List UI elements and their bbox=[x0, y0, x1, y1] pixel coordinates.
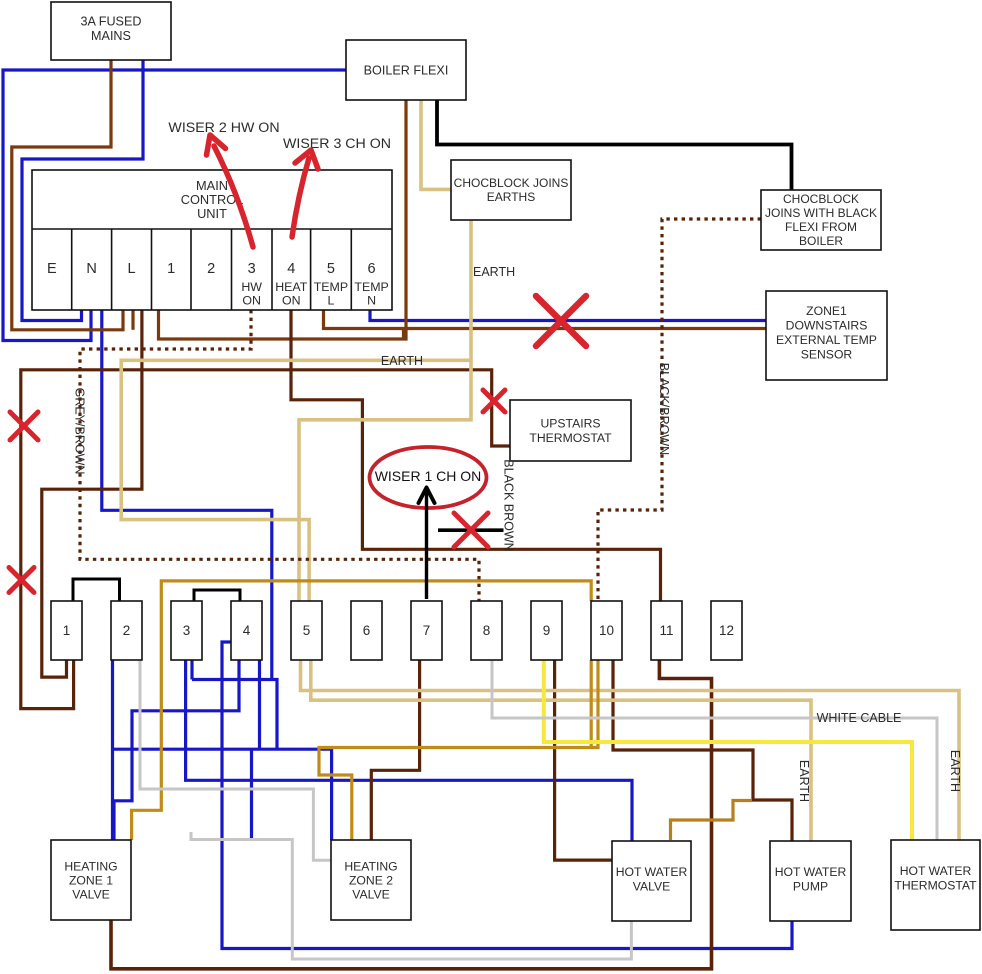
svg-text:EARTH: EARTH bbox=[797, 760, 811, 802]
svg-text:WHITE CABLE: WHITE CABLE bbox=[817, 711, 902, 725]
svg-text:UNIT: UNIT bbox=[197, 206, 227, 221]
svg-text:ZONE 1: ZONE 1 bbox=[69, 873, 113, 887]
svg-text:3: 3 bbox=[248, 261, 256, 277]
svg-text:FLEXI FROM: FLEXI FROM bbox=[785, 220, 857, 234]
svg-text:HEATING: HEATING bbox=[344, 859, 397, 873]
svg-text:N: N bbox=[86, 261, 96, 277]
svg-text:ZONE1: ZONE1 bbox=[806, 304, 847, 318]
svg-text:10: 10 bbox=[599, 623, 614, 638]
svg-text:HEATING: HEATING bbox=[64, 859, 117, 873]
svg-text:VALVE: VALVE bbox=[72, 887, 109, 901]
svg-text:1: 1 bbox=[63, 623, 71, 638]
svg-text:5: 5 bbox=[327, 261, 335, 277]
svg-text:ON: ON bbox=[242, 294, 261, 308]
svg-text:3A FUSED: 3A FUSED bbox=[81, 15, 142, 29]
svg-text:MAIN: MAIN bbox=[196, 178, 228, 193]
svg-text:TEMP: TEMP bbox=[354, 280, 388, 294]
svg-text:6: 6 bbox=[368, 261, 376, 277]
svg-text:DOWNSTAIRS: DOWNSTAIRS bbox=[786, 319, 868, 333]
svg-text:VALVE: VALVE bbox=[633, 880, 670, 894]
svg-text:ZONE 2: ZONE 2 bbox=[349, 873, 393, 887]
svg-text:4: 4 bbox=[243, 623, 251, 638]
svg-text:8: 8 bbox=[483, 623, 491, 638]
svg-text:EARTHS: EARTHS bbox=[487, 190, 535, 204]
svg-text:WISER 2 HW ON: WISER 2 HW ON bbox=[168, 120, 279, 136]
svg-text:2: 2 bbox=[123, 623, 131, 638]
svg-text:EXTERNAL TEMP: EXTERNAL TEMP bbox=[776, 333, 877, 347]
svg-text:L: L bbox=[127, 261, 135, 277]
svg-text:HW: HW bbox=[241, 280, 262, 294]
svg-text:GREY/BROWN: GREY/BROWN bbox=[73, 388, 87, 475]
svg-text:4: 4 bbox=[287, 261, 295, 277]
svg-text:JOINS WITH BLACK: JOINS WITH BLACK bbox=[765, 206, 877, 220]
svg-text:HOT WATER: HOT WATER bbox=[900, 864, 972, 878]
svg-text:EARTH: EARTH bbox=[948, 750, 962, 792]
svg-text:MAINS: MAINS bbox=[91, 29, 131, 43]
svg-text:5: 5 bbox=[303, 623, 311, 638]
svg-text:BOILER FLEXI: BOILER FLEXI bbox=[364, 63, 449, 77]
svg-text:WISER 3 CH ON: WISER 3 CH ON bbox=[283, 136, 391, 152]
svg-text:WISER 1 CH ON: WISER 1 CH ON bbox=[375, 468, 482, 484]
svg-text:PUMP: PUMP bbox=[793, 880, 828, 894]
svg-text:EARTH: EARTH bbox=[381, 354, 423, 368]
svg-text:ON: ON bbox=[282, 294, 301, 308]
svg-text:9: 9 bbox=[543, 623, 551, 638]
svg-text:VALVE: VALVE bbox=[352, 887, 389, 901]
svg-text:HOT WATER: HOT WATER bbox=[775, 865, 847, 879]
svg-text:TEMP: TEMP bbox=[314, 280, 348, 294]
svg-text:BOILER: BOILER bbox=[799, 234, 843, 248]
svg-text:BLACK BROWN: BLACK BROWN bbox=[502, 459, 516, 551]
svg-text:BLACK/BROWN: BLACK/BROWN bbox=[657, 363, 671, 455]
svg-text:UPSTAIRS: UPSTAIRS bbox=[540, 417, 600, 431]
svg-text:2: 2 bbox=[207, 261, 215, 277]
svg-text:CHOCBLOCK JOINS: CHOCBLOCK JOINS bbox=[454, 176, 569, 190]
svg-text:HOT WATER: HOT WATER bbox=[616, 865, 688, 879]
svg-text:N: N bbox=[367, 294, 376, 308]
svg-text:6: 6 bbox=[363, 623, 371, 638]
svg-text:11: 11 bbox=[659, 623, 673, 638]
svg-text:CHOCBLOCK: CHOCBLOCK bbox=[783, 192, 859, 206]
svg-text:HEAT: HEAT bbox=[275, 280, 308, 294]
svg-text:EARTH: EARTH bbox=[473, 265, 515, 279]
svg-text:SENSOR: SENSOR bbox=[801, 348, 853, 362]
svg-text:THERMOSTAT: THERMOSTAT bbox=[529, 431, 612, 445]
svg-text:E: E bbox=[47, 261, 57, 277]
svg-text:12: 12 bbox=[719, 623, 734, 638]
svg-text:L: L bbox=[327, 294, 334, 308]
svg-text:7: 7 bbox=[423, 623, 431, 638]
svg-text:THERMOSTAT: THERMOSTAT bbox=[894, 879, 977, 893]
svg-text:1: 1 bbox=[167, 261, 175, 277]
svg-text:3: 3 bbox=[183, 623, 191, 638]
